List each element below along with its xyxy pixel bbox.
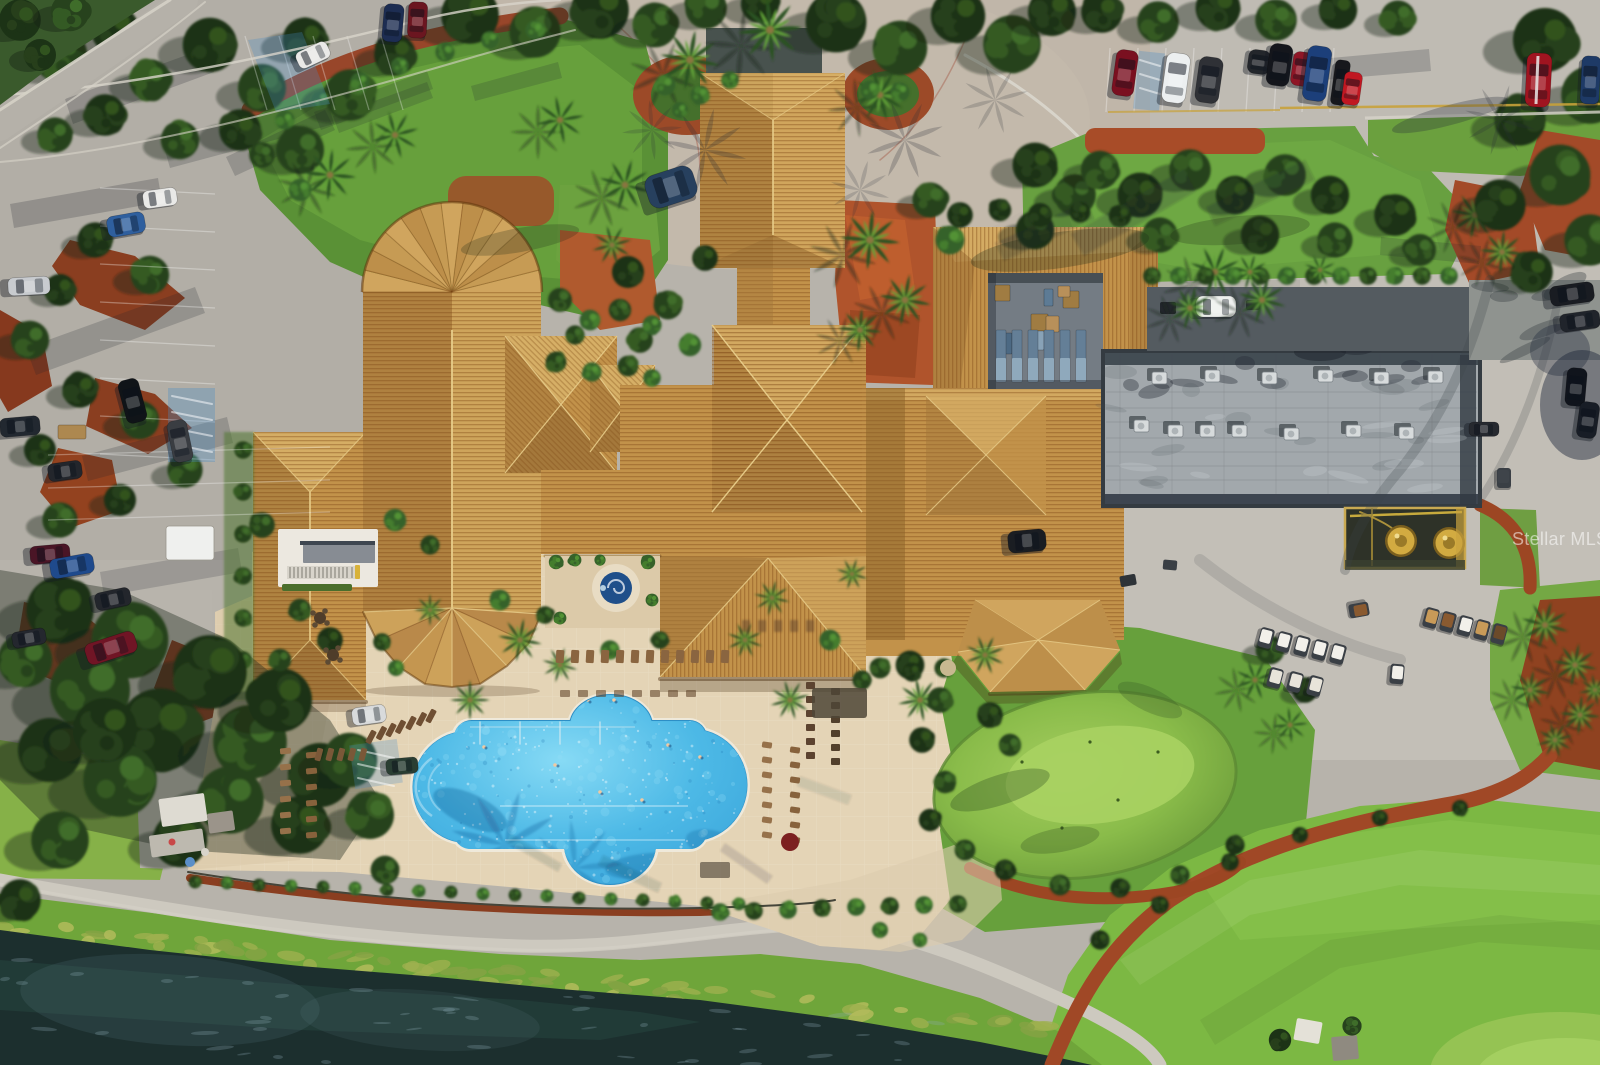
svg-text:Stellar MLS: Stellar MLS: [1512, 529, 1600, 549]
